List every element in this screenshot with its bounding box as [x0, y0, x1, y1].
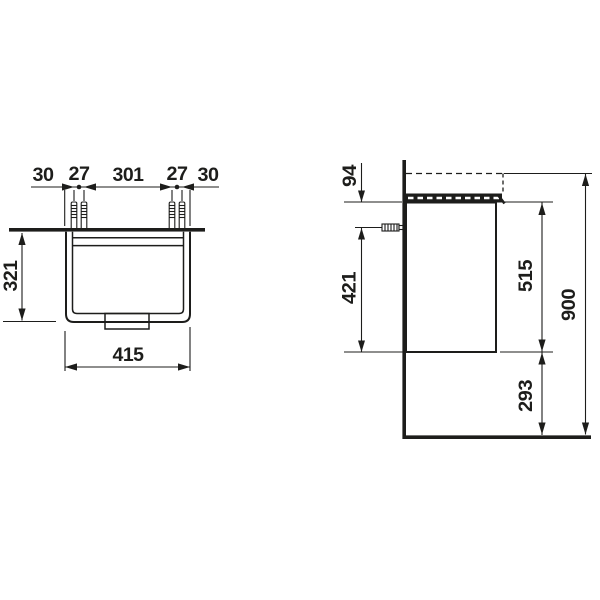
basin-rim-dim: 94 — [339, 163, 402, 202]
wall-anchor-icon — [355, 224, 404, 231]
anchor-height-dim: 421 — [339, 228, 405, 352]
dim-label-width: 415 — [113, 344, 145, 366]
plan-view: 30 27 301 27 30 — [0, 163, 219, 371]
countertop-edge — [9, 228, 205, 232]
washbasin-dashed-outline — [406, 174, 503, 194]
cabinet-side-outline — [406, 203, 496, 353]
dim-label-pair-left: 27 — [69, 163, 90, 185]
dim-label-basin-rim: 94 — [339, 164, 361, 187]
dim-label-span: 301 — [113, 164, 145, 186]
width-dim: 415 — [65, 327, 190, 371]
hole-centre-dot-right — [175, 185, 180, 190]
side-view: 94 421 515 293 — [339, 160, 593, 439]
dim-label-offset-left: 30 — [33, 164, 55, 186]
hole-centre-dot-left — [77, 185, 82, 190]
body-height-dim: 515 — [500, 202, 553, 352]
depth-dim: 321 — [0, 233, 56, 322]
dim-label-anchor-height: 421 — [339, 271, 361, 304]
vanity-dimension-drawing: 30 27 301 27 30 — [0, 0, 600, 600]
dim-label-body-height: 515 — [515, 259, 537, 292]
dim-label-depth: 321 — [0, 260, 22, 292]
technical-drawing-canvas: 30 27 301 27 30 — [0, 0, 600, 600]
floor-clearance-dim: 293 — [515, 353, 546, 436]
dim-label-offset-right: 30 — [198, 164, 220, 186]
wall-dowel-icons — [71, 202, 185, 230]
dim-label-total-height: 900 — [558, 288, 580, 321]
dim-label-floor-clearance: 293 — [515, 379, 537, 412]
cabinet-plan-outline — [66, 232, 190, 329]
mounting-dim-chain: 30 27 301 27 30 — [31, 163, 219, 226]
dim-label-pair-right: 27 — [167, 163, 188, 185]
